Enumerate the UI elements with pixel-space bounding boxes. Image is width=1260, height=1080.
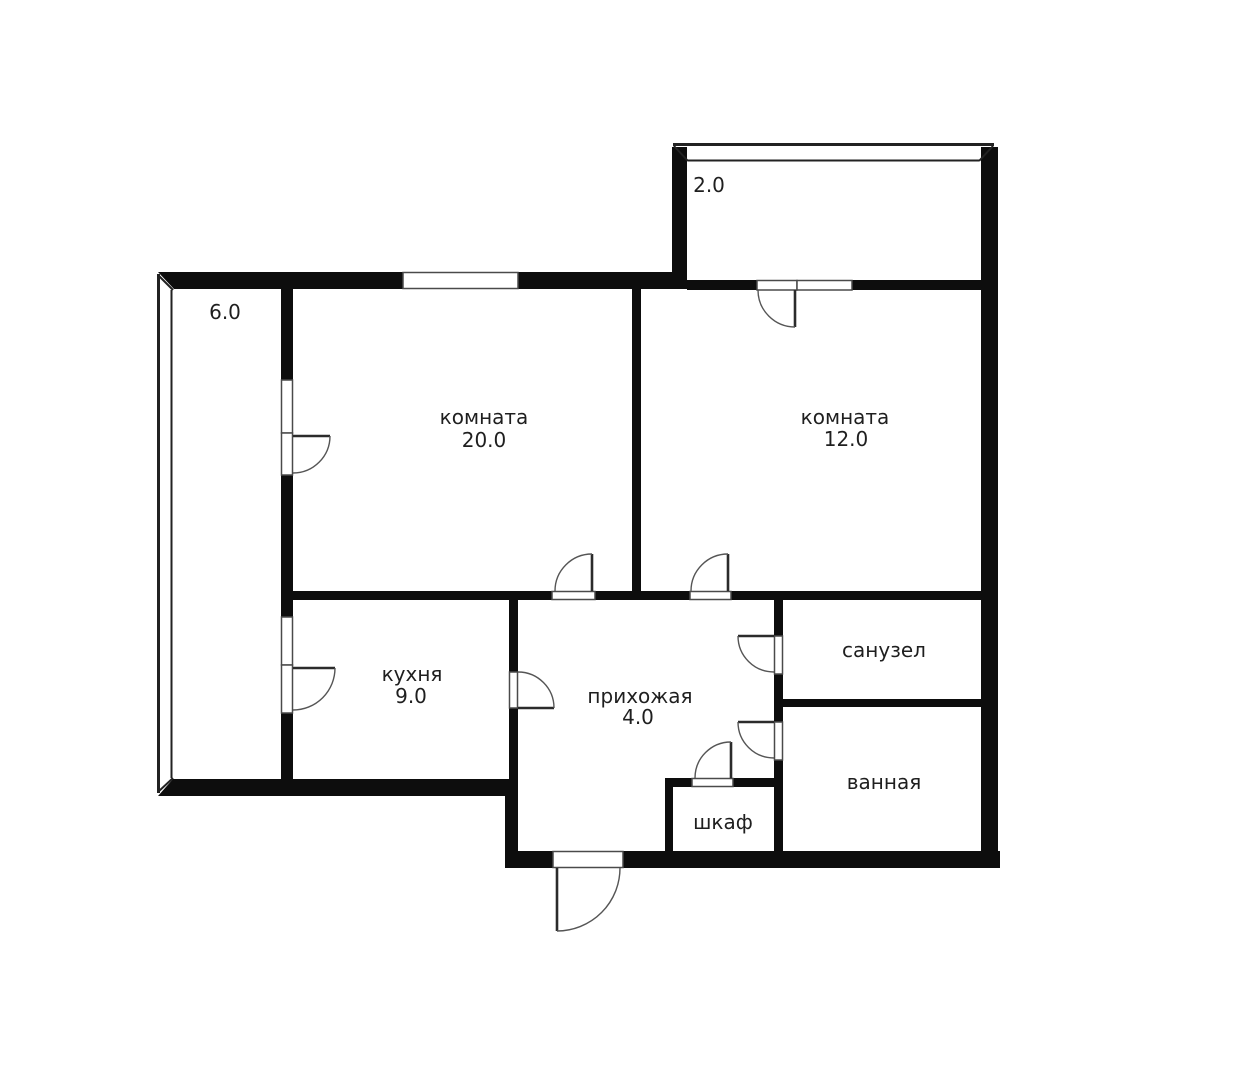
door-vannaya-arc [738,722,774,758]
doors [293,290,795,931]
window-room20-left [282,380,293,433]
door-shkaf-arc [695,742,731,778]
jamb-room12-door [690,592,731,600]
balcony2-area-label: 2.0 [693,173,725,197]
walls [158,147,1000,868]
room20-area-label: 20.0 [462,428,507,452]
jamb-kitchen-hall-door [510,672,518,708]
wall-balcony2-left [672,147,687,289]
wall-kitchen-bottom [158,779,518,796]
door-shkaf [695,742,731,778]
wall-rooms-divider [632,289,641,600]
kitchen-name-label: кухня [382,662,443,686]
door-sanuzel [738,636,774,672]
door-room12-arc [691,554,728,591]
door-kitchen-balcony-arc [293,668,335,710]
sanuzel-name-label: санузел [842,638,926,662]
window-room20-top [403,273,518,289]
jamb-kitchen-balcony-door [282,665,293,713]
jamb-room20-door [552,592,595,600]
kitchen-area-label: 9.0 [395,684,427,708]
room12-name-label: комната [801,405,890,429]
door-entrance-arc [557,868,620,931]
door-sanuzel-arc [738,636,774,672]
vannaya-name-label: ванная [847,770,921,794]
door-room12 [691,554,728,591]
door-room20-arc [555,554,592,591]
wall-left [281,272,293,796]
jamb-vannaya-door [775,722,783,760]
wall-shkaf-left [665,778,673,851]
jamb-entrance-door [553,852,623,868]
door-room20 [555,554,592,591]
door-entrance [557,868,620,931]
wall-right [981,147,998,868]
jamb-shkaf-door [692,779,733,787]
shkaf-name-label: шкаф [693,810,753,834]
door-kitchen-hall [518,672,554,708]
door-kitchen-hall-arc [518,672,554,708]
door-room20-balcony [293,436,330,473]
hallway-area-label: 4.0 [622,705,654,729]
jamb-room20-balcony-door [282,433,293,475]
window-kitchen-left [282,617,293,665]
floor-plan: 2.0 6.0 комната 20.0 комната 12.0 кухня … [0,0,1260,1080]
window-balcony2 [797,281,852,291]
room20-name-label: комната [440,405,529,429]
door-balcony2-room12-arc [758,290,795,327]
jamb-sanuzel-door [775,636,783,674]
jamb-balcony2-door [757,281,797,291]
wall-middle [293,591,982,600]
door-vannaya [738,722,774,758]
room12-area-label: 12.0 [824,427,869,451]
door-balcony2-room12 [758,290,795,327]
floor-plan-page: 2.0 6.0 комната 20.0 комната 12.0 кухня … [0,0,1260,1080]
door-kitchen-balcony [293,668,335,710]
wall-san-van [783,699,982,707]
balcony6-area-label: 6.0 [209,300,241,324]
door-room20-balcony-arc [293,436,330,473]
